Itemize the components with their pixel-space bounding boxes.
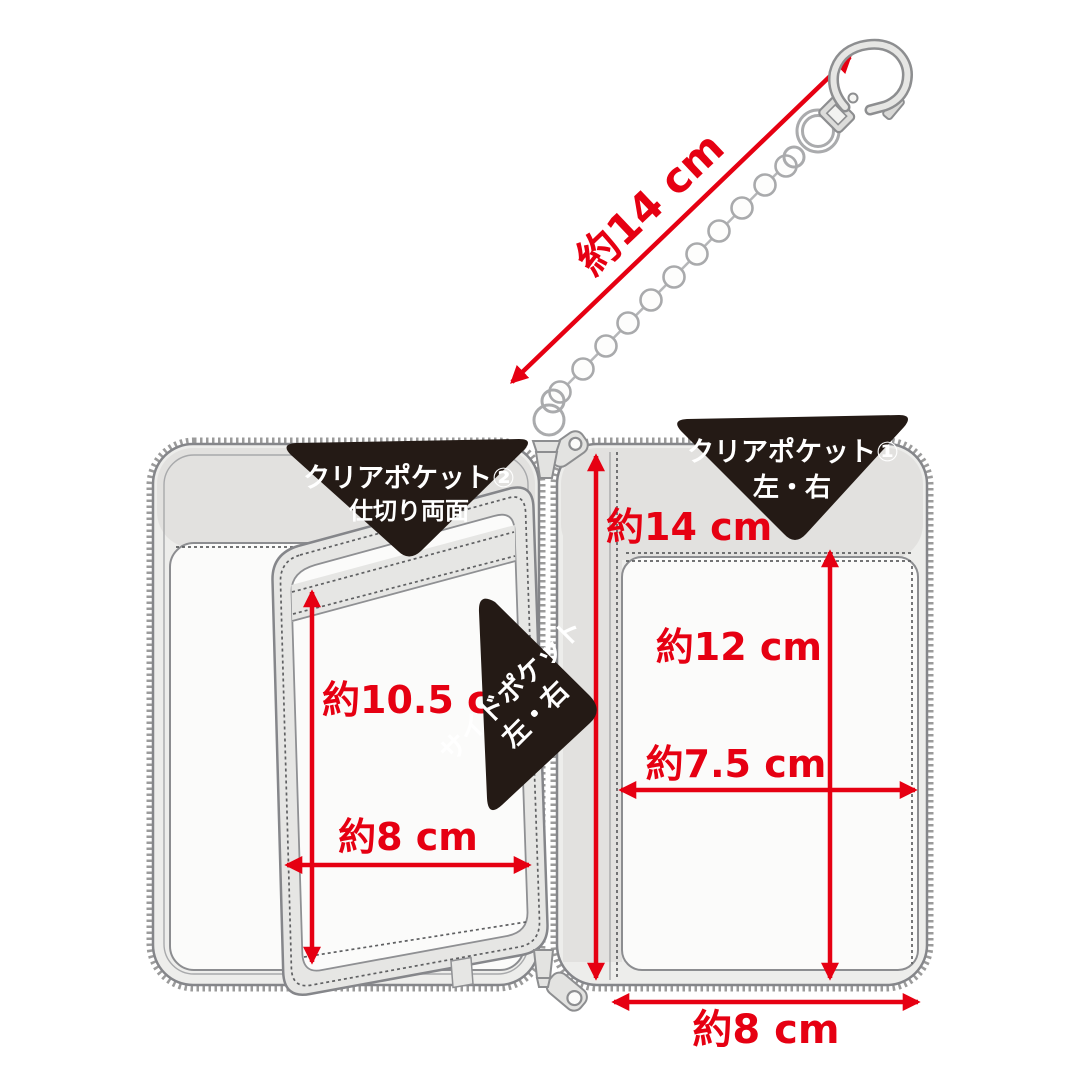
measure-case-height: 約14 cm [606, 505, 772, 549]
clear-pocket-2-label-line1: クリアポケット② [303, 463, 515, 494]
product-dimension-diagram: 約14 cm [0, 0, 1080, 1080]
measure-clear-pocket1-height: 約12 cm [656, 625, 822, 669]
clear-pocket-2-label-line2: 仕切り両面 [348, 497, 469, 525]
clear-pocket-1-label-line1: クリアポケット① [687, 437, 899, 468]
measure-divider-pocket-width: 約8 cm [338, 815, 478, 859]
clear-pocket-1-label-line2: 左・右 [753, 473, 831, 503]
measure-case-bottom-width: 約8 cm [692, 1007, 839, 1053]
measure-clear-pocket1-width: 約7.5 cm [646, 742, 827, 786]
flap-hinge-tab [451, 958, 473, 988]
diagram-canvas: 約14 cm [0, 0, 1080, 1080]
